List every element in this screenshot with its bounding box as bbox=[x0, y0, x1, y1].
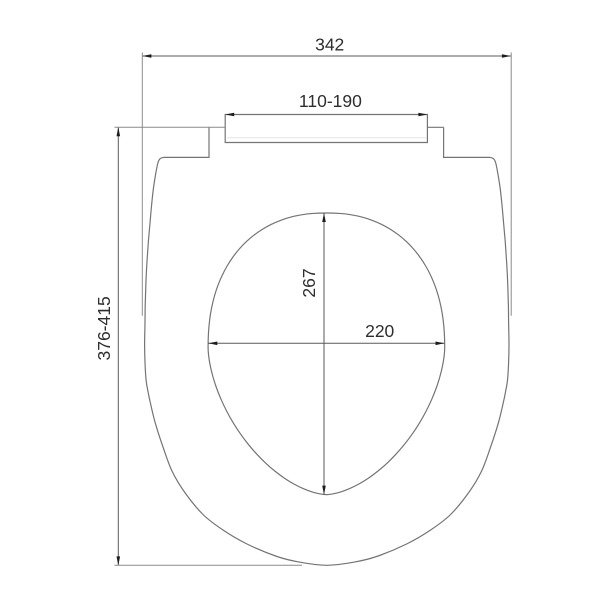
svg-text:342: 342 bbox=[315, 35, 344, 55]
svg-text:267: 267 bbox=[299, 268, 319, 297]
svg-text:376-415: 376-415 bbox=[94, 296, 114, 360]
svg-text:220: 220 bbox=[365, 321, 394, 341]
svg-text:110-190: 110-190 bbox=[299, 91, 362, 111]
